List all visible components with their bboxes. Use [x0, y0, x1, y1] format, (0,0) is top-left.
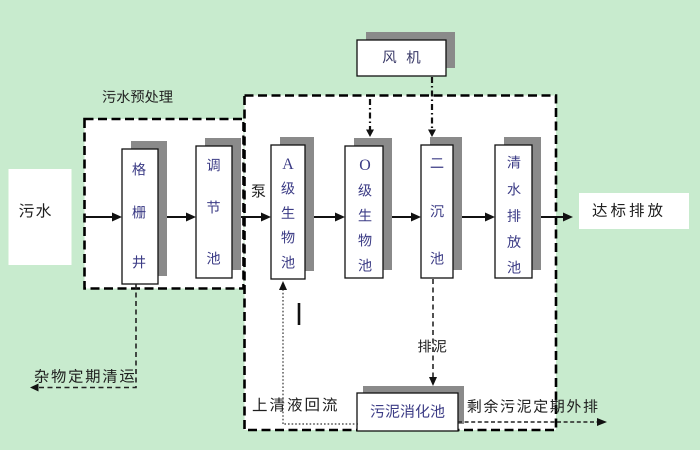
svg-text:A: A [282, 156, 294, 173]
svg-text:O: O [359, 157, 370, 174]
